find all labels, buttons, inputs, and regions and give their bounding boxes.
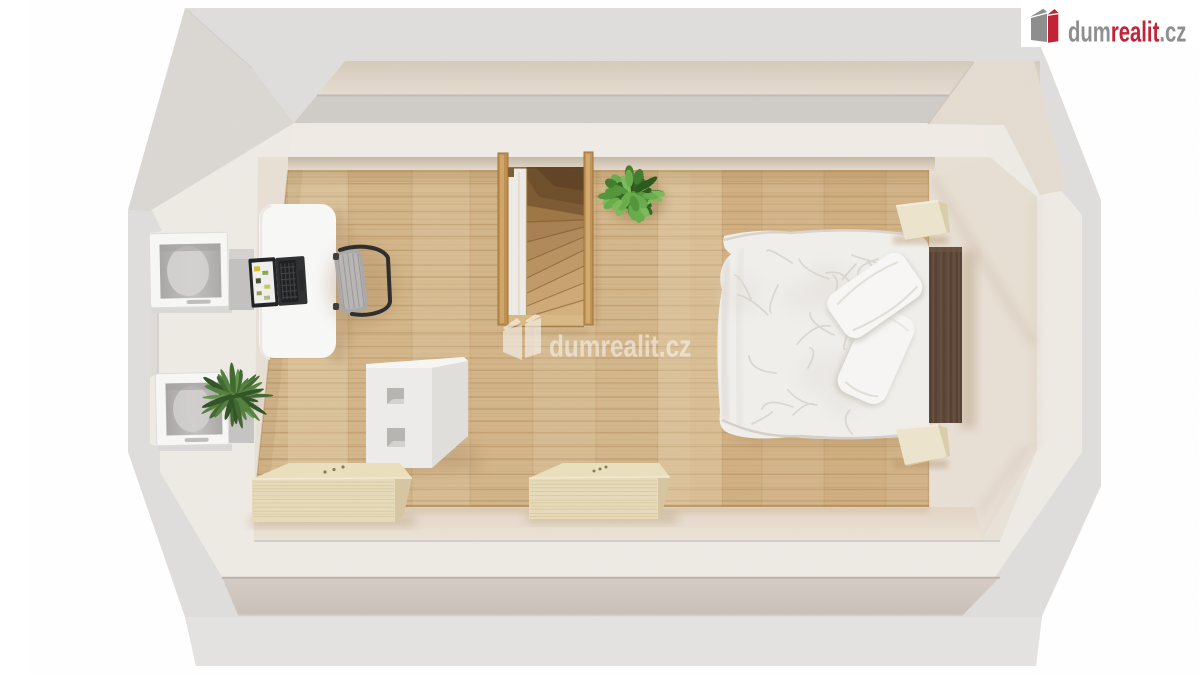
svg-text:dumrealit.cz: dumrealit.cz — [1068, 16, 1186, 48]
